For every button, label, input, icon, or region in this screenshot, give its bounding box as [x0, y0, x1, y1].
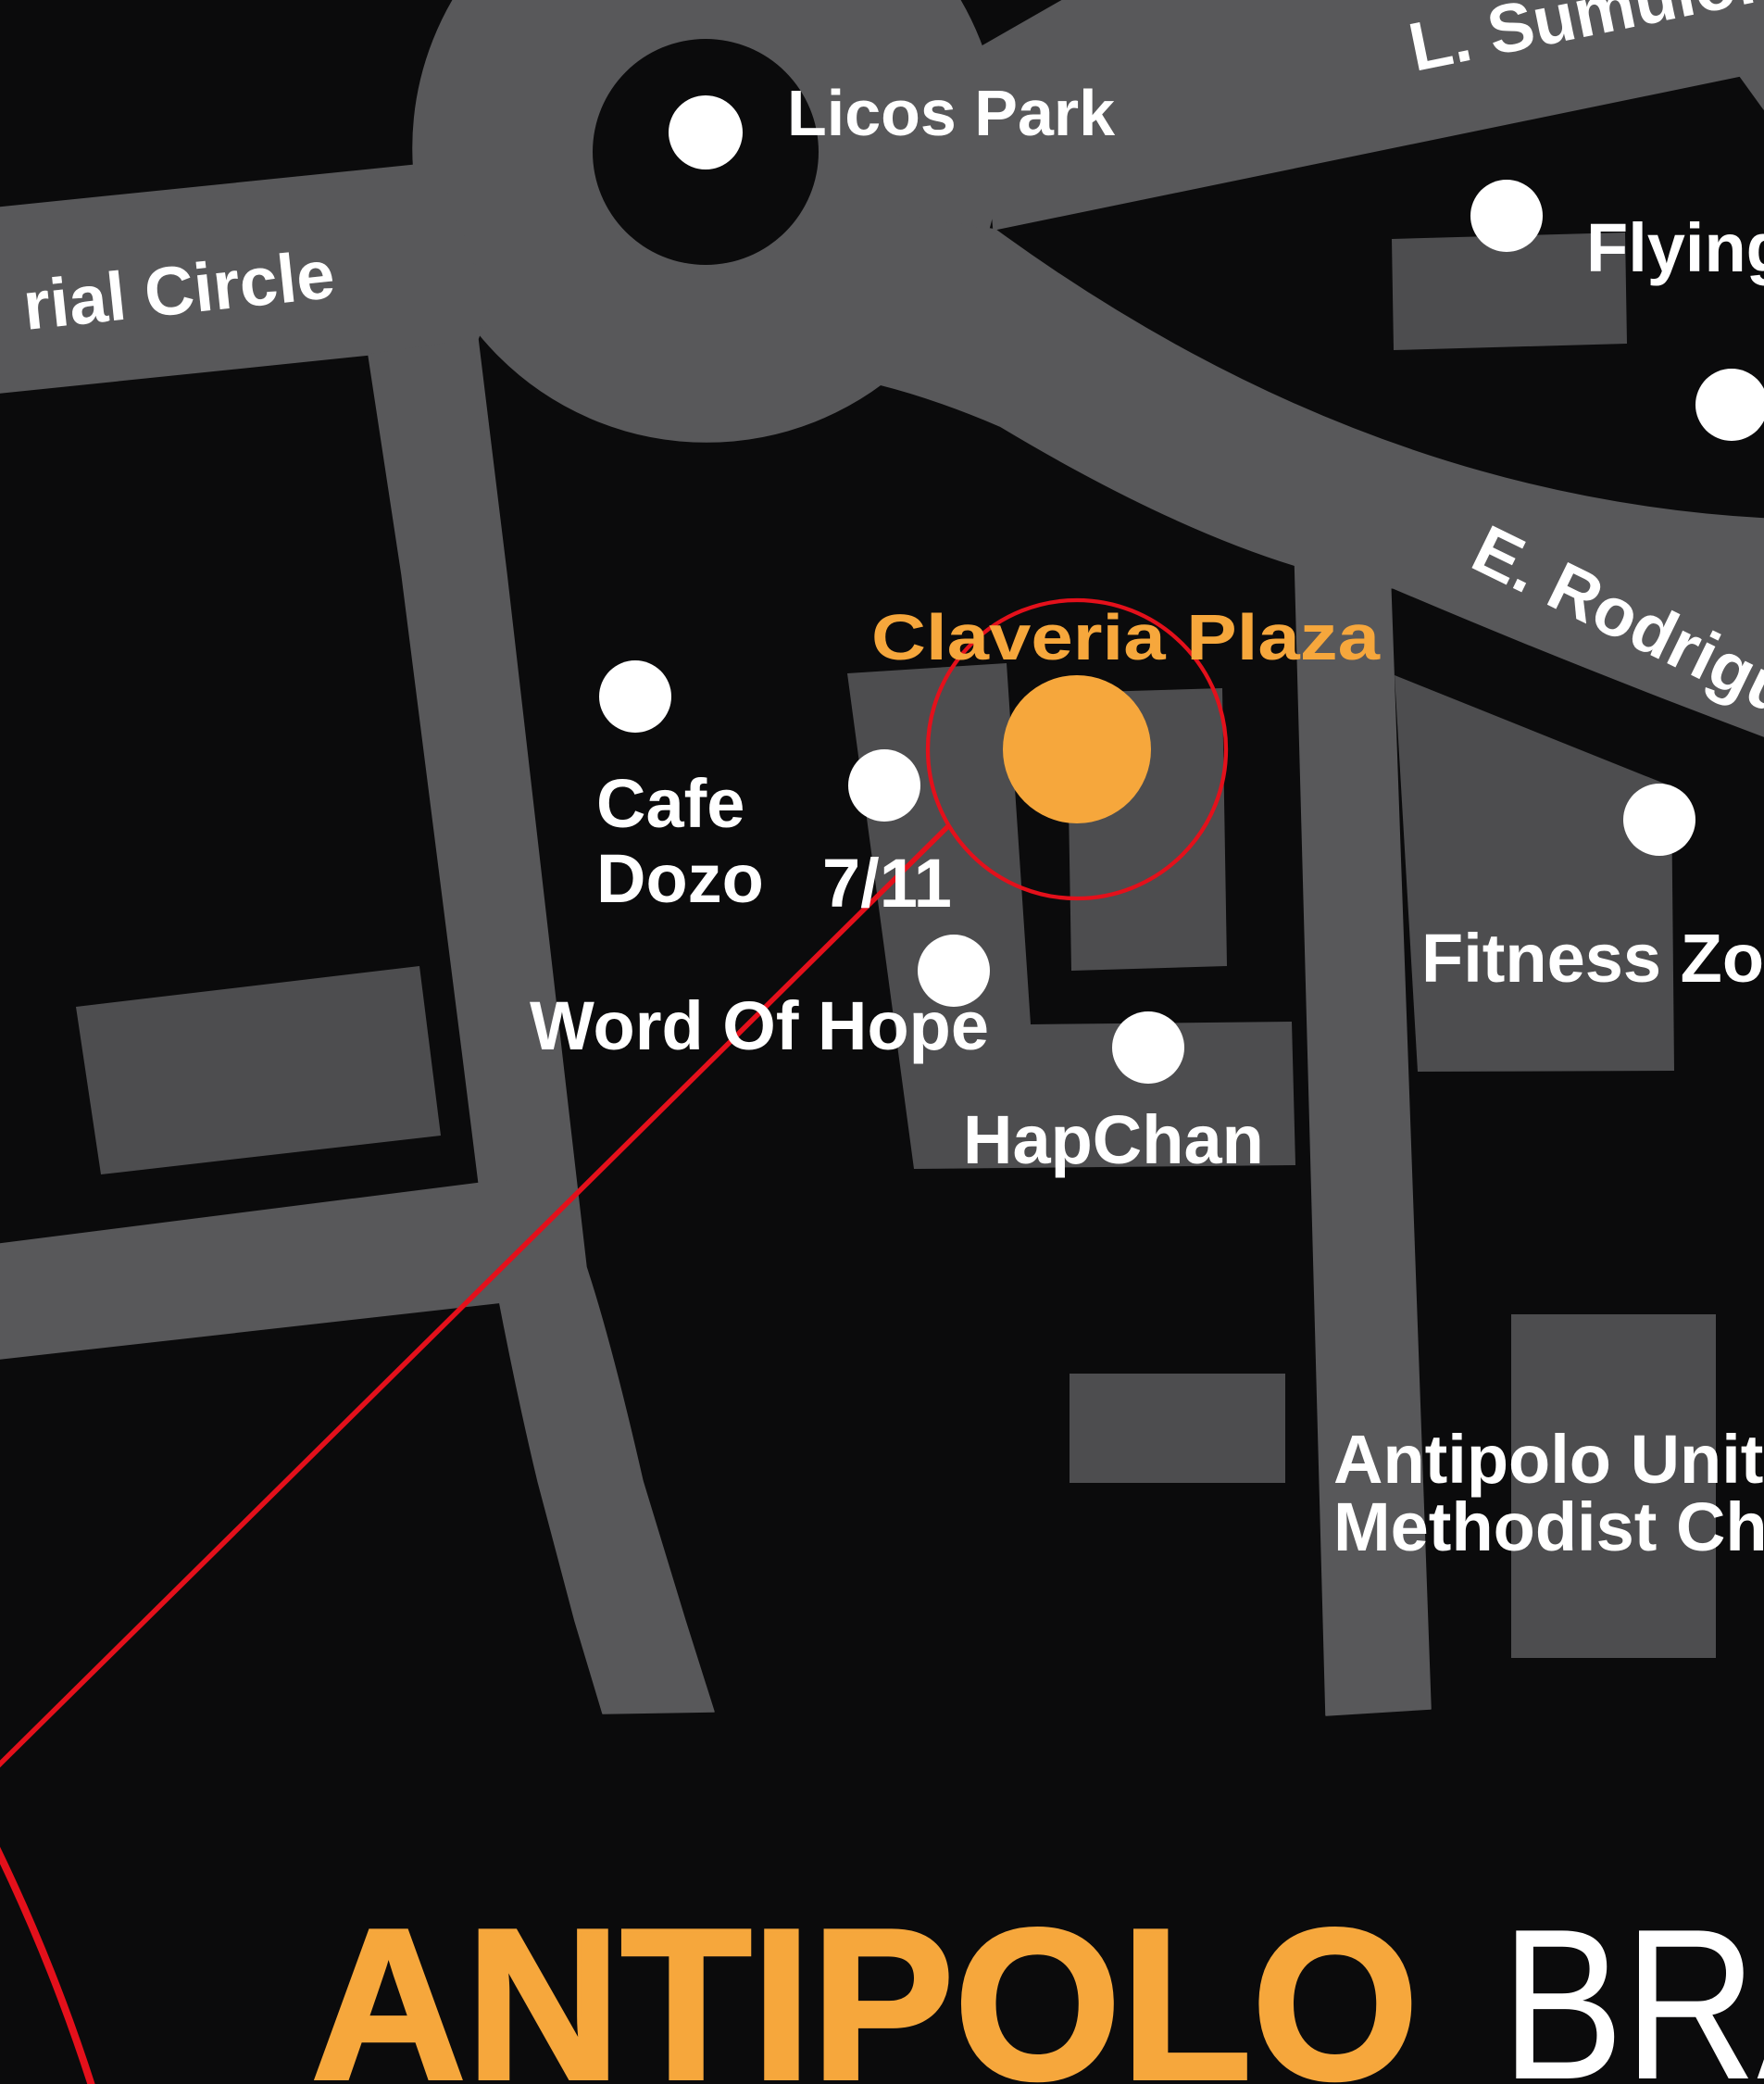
- svg-text:BRANCH: BRANCH: [1501, 1885, 1764, 2084]
- svg-text:ANTIPOLO: ANTIPOLO: [311, 1885, 1419, 2084]
- svg-text:Antipolo United: Antipolo United: [1333, 1421, 1764, 1498]
- svg-text:7/11: 7/11: [822, 845, 952, 922]
- svg-text:Dozo: Dozo: [596, 840, 764, 917]
- svg-text:Fitness Zone: Fitness Zone: [1421, 920, 1764, 997]
- svg-text:Claveria Plaza: Claveria Plaza: [871, 601, 1381, 673]
- svg-text:Methodist Church: Methodist Church: [1333, 1488, 1764, 1565]
- svg-text:Licos Park: Licos Park: [787, 77, 1115, 149]
- svg-text:Word Of Hope: Word Of Hope: [530, 987, 989, 1064]
- svg-text:Flying: Flying: [1586, 209, 1764, 286]
- svg-text:Cafe: Cafe: [596, 765, 744, 842]
- svg-text:HapChan: HapChan: [963, 1101, 1264, 1178]
